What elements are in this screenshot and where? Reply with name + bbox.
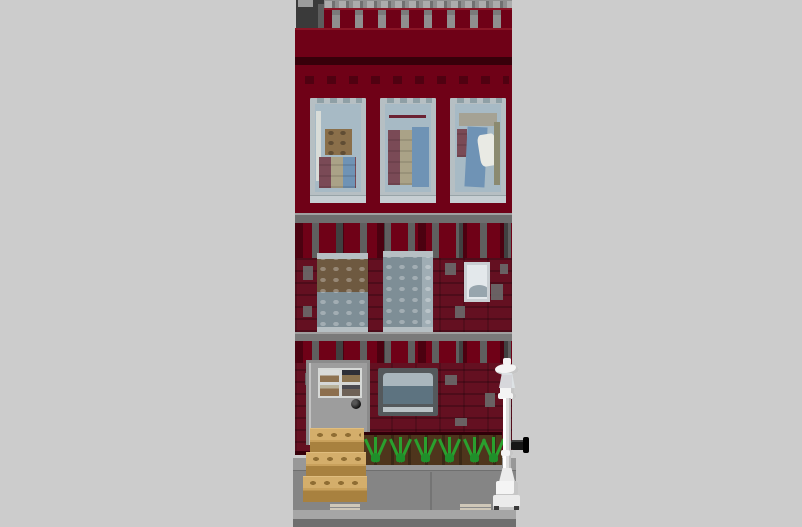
window-header xyxy=(317,253,368,259)
lamp-foot xyxy=(514,506,519,510)
grass-base xyxy=(421,453,430,462)
grass-tuft xyxy=(466,435,483,462)
vent-window[interactable] xyxy=(378,368,438,416)
grass-base xyxy=(396,453,405,462)
third-floor-wall xyxy=(295,95,512,213)
step-studs xyxy=(309,455,363,464)
grass-tuft xyxy=(485,435,502,462)
step-studs xyxy=(306,479,364,488)
interior-rail xyxy=(389,115,427,118)
mortar-patch xyxy=(303,306,312,317)
crenellated-parapet xyxy=(317,8,512,30)
interior-crates xyxy=(325,129,352,155)
window-header xyxy=(383,251,433,257)
mortar-patch xyxy=(500,264,508,274)
street-edge xyxy=(293,519,516,527)
small-window[interactable] xyxy=(464,262,490,302)
step-middle xyxy=(306,452,366,477)
grass-tuft xyxy=(441,435,458,462)
cornice-shadow xyxy=(295,57,512,65)
window-glass xyxy=(315,104,361,192)
window-frame-studs xyxy=(454,98,502,103)
grass-base xyxy=(470,453,479,462)
mortar-patch xyxy=(445,375,457,385)
window-sill xyxy=(310,195,366,203)
studded-glass xyxy=(317,253,368,332)
interior-wall xyxy=(494,122,500,185)
vent-sill xyxy=(383,407,433,412)
grass-base xyxy=(371,453,380,462)
interior-quilt xyxy=(388,130,412,185)
mortar-patch xyxy=(455,418,467,426)
wall-pipe-flange xyxy=(523,437,529,453)
lamp-base-plate xyxy=(493,495,520,510)
interior-quilt xyxy=(319,157,357,189)
lamp-ring xyxy=(501,450,513,456)
door-pane xyxy=(342,370,361,382)
door-pane xyxy=(320,385,339,397)
top-window-center[interactable] xyxy=(380,98,436,203)
window-frame-studs xyxy=(314,98,362,103)
mortar-patch xyxy=(485,393,495,407)
grass-base xyxy=(489,453,498,462)
window-sill xyxy=(380,195,436,203)
top-window-left[interactable] xyxy=(310,98,366,203)
step-top xyxy=(310,428,364,453)
middle-window-left[interactable] xyxy=(317,253,368,332)
floor-ledge-upper xyxy=(295,213,512,223)
grass-tuft xyxy=(417,435,434,462)
vent-top-face xyxy=(383,373,433,387)
brick-stud-row xyxy=(299,76,509,84)
step-bottom xyxy=(303,476,367,502)
sidewalk-seam xyxy=(430,472,432,510)
middle-window-center[interactable] xyxy=(383,251,433,332)
top-window-right[interactable] xyxy=(450,98,506,203)
lamp-foot xyxy=(494,506,499,510)
upper-wall-band xyxy=(295,28,512,95)
door-pane xyxy=(342,385,361,397)
render-viewport[interactable] xyxy=(0,0,802,527)
studded-glass xyxy=(383,251,433,332)
interior-object xyxy=(469,285,489,297)
lamp-base xyxy=(496,481,518,496)
chimney-cap xyxy=(298,0,313,7)
floor-ledge-lower xyxy=(295,332,512,341)
interior-shelf xyxy=(459,113,498,126)
grass-tuft xyxy=(367,435,384,462)
vent-front-face xyxy=(383,386,433,404)
door-pane xyxy=(320,370,339,382)
window-glass xyxy=(455,104,501,192)
grass-tuft xyxy=(392,435,409,462)
door-window xyxy=(318,368,362,398)
window-glass xyxy=(385,104,431,192)
mortar-patch xyxy=(303,266,313,280)
interior-bed xyxy=(412,127,429,187)
mortar-patch xyxy=(491,284,503,300)
step-studs xyxy=(313,431,361,440)
window-sill xyxy=(450,195,506,203)
grass-base xyxy=(445,453,454,462)
curb xyxy=(293,510,516,519)
middle-floor-wall xyxy=(295,258,512,332)
mortar-patch xyxy=(455,306,465,318)
window-frame-studs xyxy=(384,98,432,103)
door-knob[interactable] xyxy=(351,399,361,409)
mortar-patch xyxy=(445,263,456,275)
